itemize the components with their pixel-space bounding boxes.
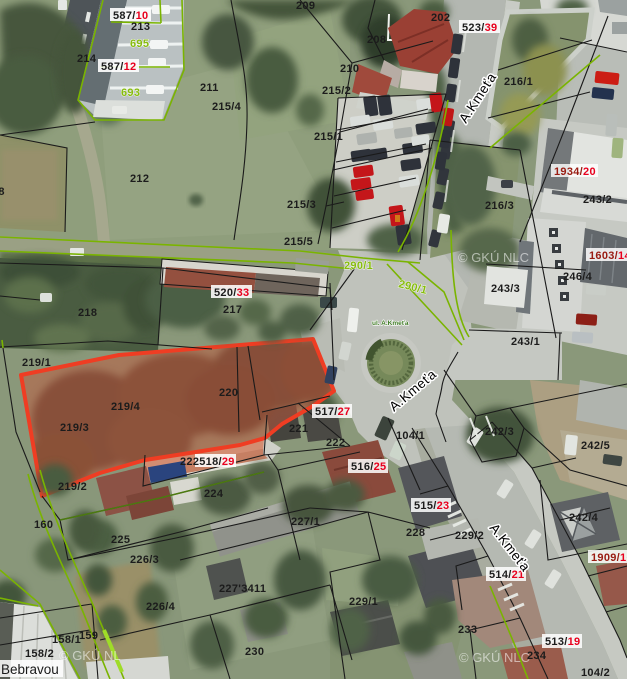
svg-text:© GKÚ NL: © GKÚ NL: [59, 648, 121, 663]
svg-text:233: 233: [458, 624, 477, 636]
svg-text:242/4: 242/4: [569, 512, 599, 524]
svg-text:213: 213: [131, 21, 150, 33]
svg-text:© GKÚ NLC: © GKÚ NLC: [458, 250, 529, 265]
svg-text:520/33: 520/33: [214, 287, 249, 299]
svg-text:1603/14: 1603/14: [589, 250, 627, 262]
svg-text:104/2: 104/2: [581, 667, 610, 679]
svg-text:224: 224: [204, 488, 224, 500]
svg-text:226/3: 226/3: [130, 554, 159, 566]
svg-text:218: 218: [78, 307, 97, 319]
svg-text:225: 225: [111, 534, 130, 546]
svg-text:222: 222: [326, 437, 345, 449]
svg-text:228: 228: [406, 527, 425, 539]
svg-text:219/1: 219/1: [22, 357, 51, 369]
svg-text:290/1: 290/1: [344, 260, 373, 272]
svg-text:513/19: 513/19: [545, 636, 580, 648]
svg-text:523/39: 523/39: [462, 22, 497, 34]
svg-text:© GKÚ NLC: © GKÚ NLC: [459, 650, 530, 665]
svg-text:242/3: 242/3: [485, 426, 514, 438]
svg-text:222518/29: 222518/29: [180, 456, 235, 468]
svg-text:214: 214: [77, 53, 97, 65]
svg-text:226/4: 226/4: [146, 601, 176, 613]
svg-text:229/1: 229/1: [349, 596, 378, 608]
svg-text:695: 695: [130, 38, 149, 50]
svg-text:215/1: 215/1: [314, 131, 343, 143]
svg-text:Bebravou: Bebravou: [1, 662, 59, 677]
svg-text:516/25: 516/25: [351, 461, 386, 473]
svg-text:210: 210: [340, 63, 359, 75]
svg-text:227/1: 227/1: [291, 516, 320, 528]
svg-text:221: 221: [289, 423, 308, 435]
svg-text:211: 211: [200, 82, 219, 94]
svg-text:ul. A.Kmeťa: ul. A.Kmeťa: [372, 320, 409, 327]
svg-text:104/1: 104/1: [396, 430, 425, 442]
svg-text:159: 159: [79, 630, 98, 642]
svg-text:1934/20: 1934/20: [554, 166, 596, 178]
svg-text:202: 202: [431, 12, 450, 24]
svg-text:160: 160: [34, 519, 53, 531]
svg-text:208: 208: [367, 34, 386, 46]
svg-text:230: 230: [245, 646, 264, 658]
svg-text:243/2: 243/2: [583, 194, 612, 206]
svg-text:243/3: 243/3: [491, 283, 520, 295]
svg-text:517/27: 517/27: [315, 406, 350, 418]
svg-text:158/1: 158/1: [52, 634, 81, 646]
svg-text:693: 693: [121, 87, 140, 99]
svg-text:215/3: 215/3: [287, 199, 316, 211]
svg-text:212: 212: [130, 173, 149, 185]
svg-text:1909/16: 1909/16: [591, 552, 627, 564]
svg-text:209: 209: [296, 0, 315, 12]
svg-text:219/4: 219/4: [111, 401, 141, 413]
svg-text:246/4: 246/4: [563, 271, 593, 283]
svg-text:220: 220: [219, 387, 238, 399]
svg-text:219/2: 219/2: [58, 481, 87, 493]
svg-text:217: 217: [223, 304, 242, 316]
svg-text:227'3411: 227'3411: [219, 583, 266, 595]
svg-text:215/5: 215/5: [284, 236, 313, 248]
svg-text:229/2: 229/2: [455, 530, 484, 542]
svg-text:158/2: 158/2: [25, 648, 54, 660]
svg-text:242/5: 242/5: [581, 440, 610, 452]
svg-text:216/3: 216/3: [485, 200, 514, 212]
svg-text:587/12: 587/12: [101, 61, 136, 73]
svg-text:215/4: 215/4: [212, 101, 242, 113]
svg-text:215/2: 215/2: [322, 85, 351, 97]
svg-text:216/1: 216/1: [504, 76, 533, 88]
svg-text:515/23: 515/23: [414, 500, 449, 512]
svg-text:219/3: 219/3: [60, 422, 89, 434]
svg-text:18: 18: [0, 186, 5, 198]
svg-text:243/1: 243/1: [511, 336, 540, 348]
